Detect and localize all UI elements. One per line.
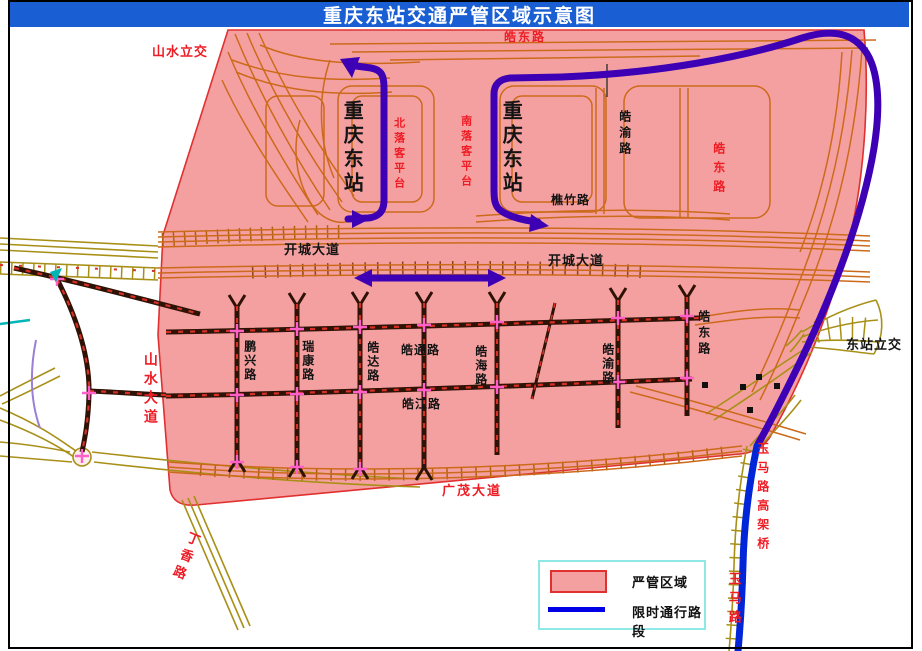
legend-zone-swatch <box>550 570 607 593</box>
map-canvas <box>0 0 922 651</box>
page-title: 重庆东站交通严管区域示意图 <box>323 1 596 28</box>
title-bar: 重庆东站交通严管区域示意图 <box>10 2 909 27</box>
teal-features <box>0 268 62 428</box>
legend-box: 严管区域 限时通行路段 <box>538 560 706 630</box>
map-page: 重庆东站交通严管区域示意图 山水立交皓东路皓东路北落客平台南落客平台重庆东站重庆… <box>0 0 922 651</box>
legend-route-line <box>548 607 605 612</box>
legend-route-label: 限时通行路段 <box>632 602 704 640</box>
legend-zone-label: 严管区域 <box>632 572 688 591</box>
